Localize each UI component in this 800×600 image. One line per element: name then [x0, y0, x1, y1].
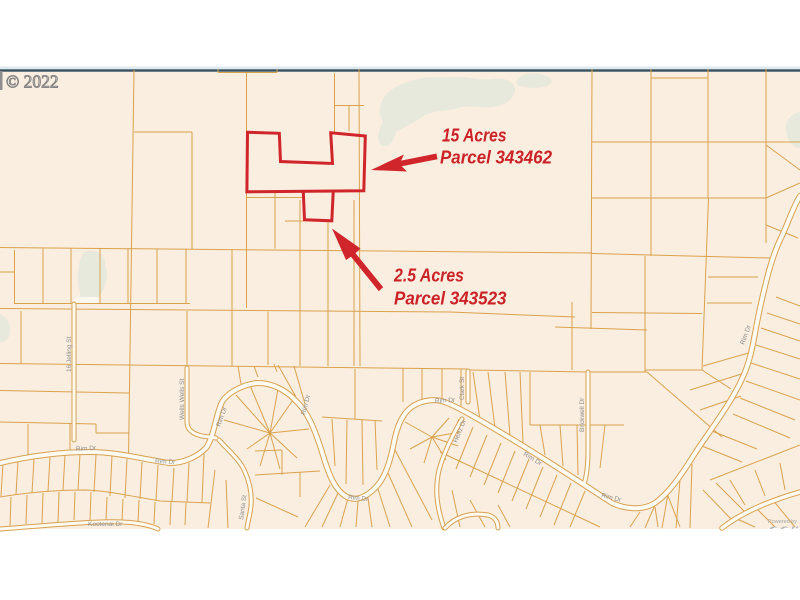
- svg-text:2.5 Acres: 2.5 Acres: [393, 266, 464, 286]
- svg-text:16 Jelling St: 16 Jelling St: [66, 336, 73, 372]
- svg-text:Kootenai Dr: Kootenai Dr: [88, 521, 123, 528]
- svg-text:Clark St: Clark St: [459, 377, 466, 400]
- svg-text:Rim Dr: Rim Dr: [435, 397, 456, 405]
- svg-text:Parcel 343462: Parcel 343462: [440, 148, 552, 168]
- svg-text:Wells Wells St: Wells Wells St: [179, 379, 186, 420]
- svg-text:esri: esri: [770, 522, 800, 544]
- svg-text:15 Acres: 15 Acres: [442, 126, 507, 146]
- svg-text:© 2022: © 2022: [6, 72, 59, 92]
- svg-text:Rim Dr: Rim Dr: [155, 458, 176, 466]
- svg-text:Parcel 343523: Parcel 343523: [394, 289, 507, 309]
- svg-text:Brickwell Dr: Brickwell Dr: [579, 397, 586, 432]
- svg-text:Rim Dr: Rim Dr: [76, 445, 97, 453]
